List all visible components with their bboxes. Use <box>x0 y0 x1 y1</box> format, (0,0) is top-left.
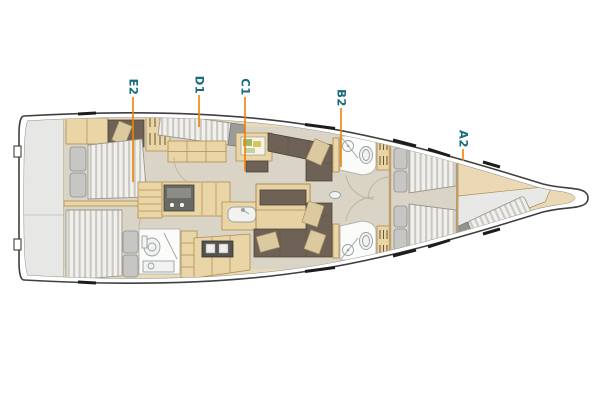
dinette-table <box>256 184 310 236</box>
zone-label-a2[interactable]: A2 <box>457 130 471 161</box>
stern-platform <box>19 110 64 290</box>
zone-label-text[interactable]: D1 <box>193 76 207 95</box>
zone-label-text[interactable]: B2 <box>335 89 349 107</box>
layout-plan-canvas: E2 D1 C1 B2 A2 <box>0 0 600 400</box>
corridor-lamp <box>330 192 341 199</box>
double-bed <box>70 139 147 199</box>
galley-oven-unit <box>162 182 230 216</box>
transom-step <box>14 239 21 250</box>
zone-label-text[interactable]: C1 <box>239 78 253 95</box>
drawer-shelf <box>168 141 226 162</box>
transom-step <box>14 146 21 157</box>
shelf-strip <box>333 138 339 172</box>
chart-stool <box>246 161 268 172</box>
yacht-layout-plan: E2 D1 C1 B2 A2 <box>0 0 600 400</box>
interior <box>19 108 588 292</box>
bow-compartment <box>456 108 588 292</box>
shelf-strip <box>333 224 339 258</box>
cabin-wall <box>64 201 144 206</box>
stove <box>202 241 233 257</box>
zone-label-text[interactable]: E2 <box>127 79 141 96</box>
galley-counter <box>194 234 250 278</box>
zone-label-text[interactable]: A2 <box>457 130 471 148</box>
companionway-steps <box>138 182 162 218</box>
